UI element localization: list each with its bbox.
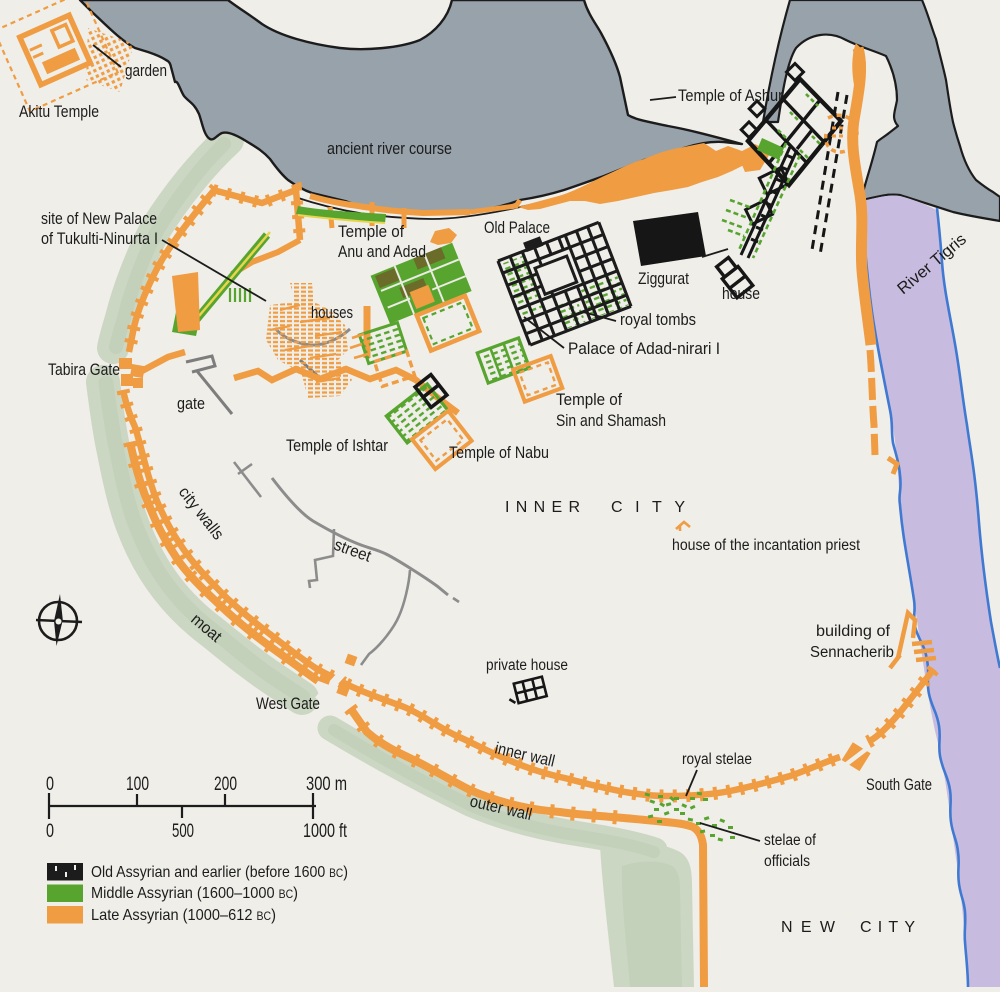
svg-text:Temple of Nabu: Temple of Nabu — [449, 444, 549, 462]
svg-text:Sin and Shamash: Sin and Shamash — [556, 412, 666, 430]
svg-text:Ziggurat: Ziggurat — [638, 270, 689, 288]
svg-text:Middle Assyrian (1600–1000 BC): Middle Assyrian (1600–1000 BC) — [91, 885, 298, 902]
svg-text:Temple of: Temple of — [338, 223, 404, 241]
svg-text:Late Assyrian (1000–612 BC): Late Assyrian (1000–612 BC) — [91, 907, 276, 924]
svg-text:300 m: 300 m — [306, 774, 347, 795]
svg-text:Sennacherib: Sennacherib — [810, 644, 894, 661]
svg-text:of Tukulti-Ninurta I: of Tukulti-Ninurta I — [41, 230, 158, 248]
svg-text:ancient river course: ancient river course — [327, 140, 452, 158]
svg-text:Temple of Ishtar: Temple of Ishtar — [286, 437, 388, 455]
svg-text:house of the incantation pries: house of the incantation priest — [672, 537, 861, 554]
svg-text:0: 0 — [46, 821, 54, 842]
svg-text:Palace of Adad-nirari I: Palace of Adad-nirari I — [568, 340, 720, 358]
svg-text:NEW: NEW — [781, 919, 836, 936]
svg-text:garden: garden — [125, 62, 167, 80]
svg-text:INNER: INNER — [505, 499, 580, 516]
svg-text:0: 0 — [46, 774, 54, 795]
svg-text:Anu and Adad: Anu and Adad — [338, 243, 426, 261]
svg-text:Tabira Gate: Tabira Gate — [48, 361, 120, 379]
svg-text:Temple of Ashur: Temple of Ashur — [678, 87, 783, 105]
svg-text:Temple of: Temple of — [556, 391, 622, 409]
svg-text:Old Assyrian and earlier (befo: Old Assyrian and earlier (before 1600 BC… — [91, 864, 348, 881]
svg-text:500: 500 — [172, 821, 194, 842]
svg-text:officials: officials — [764, 853, 810, 870]
svg-text:South Gate: South Gate — [866, 776, 932, 794]
svg-text:CITY: CITY — [860, 919, 915, 936]
svg-text:gate: gate — [177, 395, 205, 413]
svg-text:site of New Palace: site of New Palace — [41, 210, 157, 228]
svg-text:royal stelae: royal stelae — [682, 751, 752, 768]
svg-text:royal tombs: royal tombs — [620, 311, 696, 329]
svg-text:1000 ft: 1000 ft — [303, 821, 348, 842]
svg-text:200: 200 — [214, 774, 237, 795]
svg-text:100: 100 — [126, 774, 149, 795]
svg-text:Old Palace: Old Palace — [484, 219, 550, 237]
svg-text:stelae of: stelae of — [764, 832, 817, 849]
svg-text:private house: private house — [486, 657, 568, 674]
svg-text:Akitu Temple: Akitu Temple — [19, 103, 99, 121]
svg-text:West Gate: West Gate — [256, 695, 320, 713]
svg-text:building of: building of — [816, 623, 891, 640]
svg-text:houses: houses — [311, 304, 353, 322]
svg-text:house: house — [722, 285, 760, 303]
